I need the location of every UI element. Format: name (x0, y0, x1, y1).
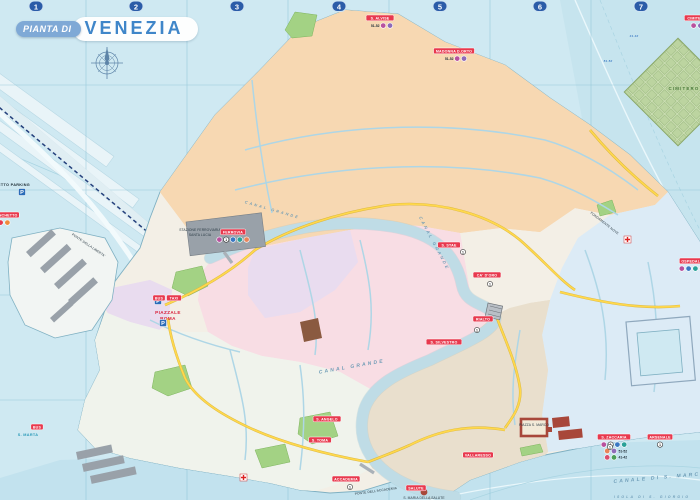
grid-badge-7: 7 (634, 1, 648, 12)
svg-text:BUS: BUS (155, 296, 164, 300)
svg-text:51-52: 51-52 (445, 57, 454, 61)
place-label: PIAZZA S. MARCO (519, 423, 549, 427)
svg-text:ARSENALE: ARSENALE (649, 435, 671, 439)
place-label: STAZIONE FERROVIARIA (179, 228, 221, 232)
svg-text:TAXI: TAXI (170, 296, 179, 300)
line1-marker: 1 (487, 281, 492, 286)
place-label: PIAZZALE (155, 310, 181, 315)
svg-text:51-52: 51-52 (618, 449, 627, 453)
svg-text:MADONNA D.ORTO: MADONNA D.ORTO (436, 49, 472, 53)
svg-text:1: 1 (609, 445, 611, 449)
vaporetto-stop-s-stae: S. STAE (438, 242, 461, 248)
svg-text:1: 1 (225, 238, 227, 242)
svg-text:P: P (161, 321, 165, 327)
svg-text:TRONCHETTO: TRONCHETTO (0, 213, 17, 217)
grid-badge-2: 2 (129, 1, 143, 12)
svg-text:S. ANGELO: S. ANGELO (316, 417, 337, 421)
svg-text:S. ALVISE: S. ALVISE (371, 16, 390, 20)
place-label: TRONCHETTO PARKING (0, 183, 30, 187)
svg-text:S. STAE: S. STAE (441, 243, 457, 247)
water-label: ISOLA DI S. GIORGIO (614, 495, 690, 499)
svg-text:5: 5 (438, 2, 442, 11)
parking-icon: P (19, 189, 26, 197)
svg-text:1: 1 (349, 485, 351, 489)
line1-marker: 1 (347, 484, 352, 489)
svg-text:OSPEDALE: OSPEDALE (681, 259, 700, 263)
label-pill-bus: BUS (153, 295, 165, 301)
svg-text:CIMITERO: CIMITERO (687, 16, 700, 20)
grid-badge-6: 6 (533, 1, 547, 12)
water-label: 41-42 (629, 34, 639, 38)
svg-text:1: 1 (659, 443, 661, 447)
line1-marker: 1 (607, 444, 612, 449)
place-label: S. MARTA (18, 433, 38, 437)
place-label: S. MARIA DELLA SALUTE (403, 496, 445, 500)
svg-text:S. ZACCARIA: S. ZACCARIA (601, 435, 627, 439)
label-pill-bus: BUS (31, 424, 43, 430)
map-canvas: 1234567 CANAL GRANDECANAL GRANDECANAL GR… (0, 0, 700, 500)
svg-text:S. TOMA: S. TOMA (312, 438, 329, 442)
svg-text:RIALTO: RIALTO (476, 317, 490, 321)
grid-badge-1: 1 (29, 1, 43, 12)
parking-icon: P (160, 320, 167, 328)
svg-text:1: 1 (489, 282, 491, 286)
line1-marker: 1 (460, 249, 465, 254)
grid-badge-3: 3 (230, 1, 244, 12)
water-label: 51-52 (604, 59, 613, 63)
svg-text:ACCADEMIA: ACCADEMIA (334, 477, 358, 481)
vaporetto-stop-s-toma: S. TOMA (309, 437, 332, 443)
map-title: PIANTA DI VENEZIA (16, 17, 198, 41)
vaporetto-stop-s-silvestro: S. SILVESTRO (426, 339, 462, 345)
vaporetto-stop-s-angelo: S. ANGELO (313, 416, 341, 422)
svg-text:FERROVIA: FERROVIA (223, 230, 243, 234)
vaporetto-stop-accademia: ACCADEMIA (332, 476, 360, 482)
svg-text:41-42: 41-42 (618, 456, 627, 460)
svg-text:VALLARESSO: VALLARESSO (465, 453, 491, 457)
svg-text:SALUTE: SALUTE (408, 486, 424, 490)
svg-text:6: 6 (538, 2, 542, 11)
vaporetto-stop-vallaresso: VALLARESSO (463, 452, 494, 458)
svg-text:1: 1 (476, 328, 478, 332)
svg-text:3: 3 (235, 2, 239, 11)
arsenale (626, 316, 695, 385)
vaporetto-stop-rialto: RIALTO (473, 316, 493, 322)
vaporetto-stop-ca-d-oro: CA' D'ORO (473, 272, 501, 278)
svg-text:BUS: BUS (33, 425, 42, 429)
svg-text:CA' D'ORO: CA' D'ORO (477, 273, 497, 277)
venice-city-map: { "title": {"prefix": "PIANTA DI", "name… (0, 0, 700, 500)
frari-church (300, 318, 322, 342)
svg-text:51-52: 51-52 (371, 24, 380, 28)
grid-badge-4: 4 (332, 1, 346, 12)
map-title-name: VENEZIA (73, 17, 198, 41)
grid-badge-5: 5 (433, 1, 447, 12)
place-label: SANTA LUCIA (189, 233, 212, 237)
svg-text:1: 1 (462, 250, 464, 254)
svg-text:S. SILVESTRO: S. SILVESTRO (431, 340, 458, 344)
svg-text:1: 1 (34, 2, 38, 11)
map-title-prefix: PIANTA DI (16, 21, 81, 37)
svg-text:2: 2 (134, 2, 138, 11)
place-label: CIMITERO (668, 86, 699, 91)
svg-text:7: 7 (639, 2, 643, 11)
vaporetto-stop-salute: SALUTE (406, 485, 426, 491)
line1-marker: 1 (474, 327, 479, 332)
label-pill-taxi: TAXI (167, 295, 182, 301)
svg-text:P: P (20, 190, 24, 196)
